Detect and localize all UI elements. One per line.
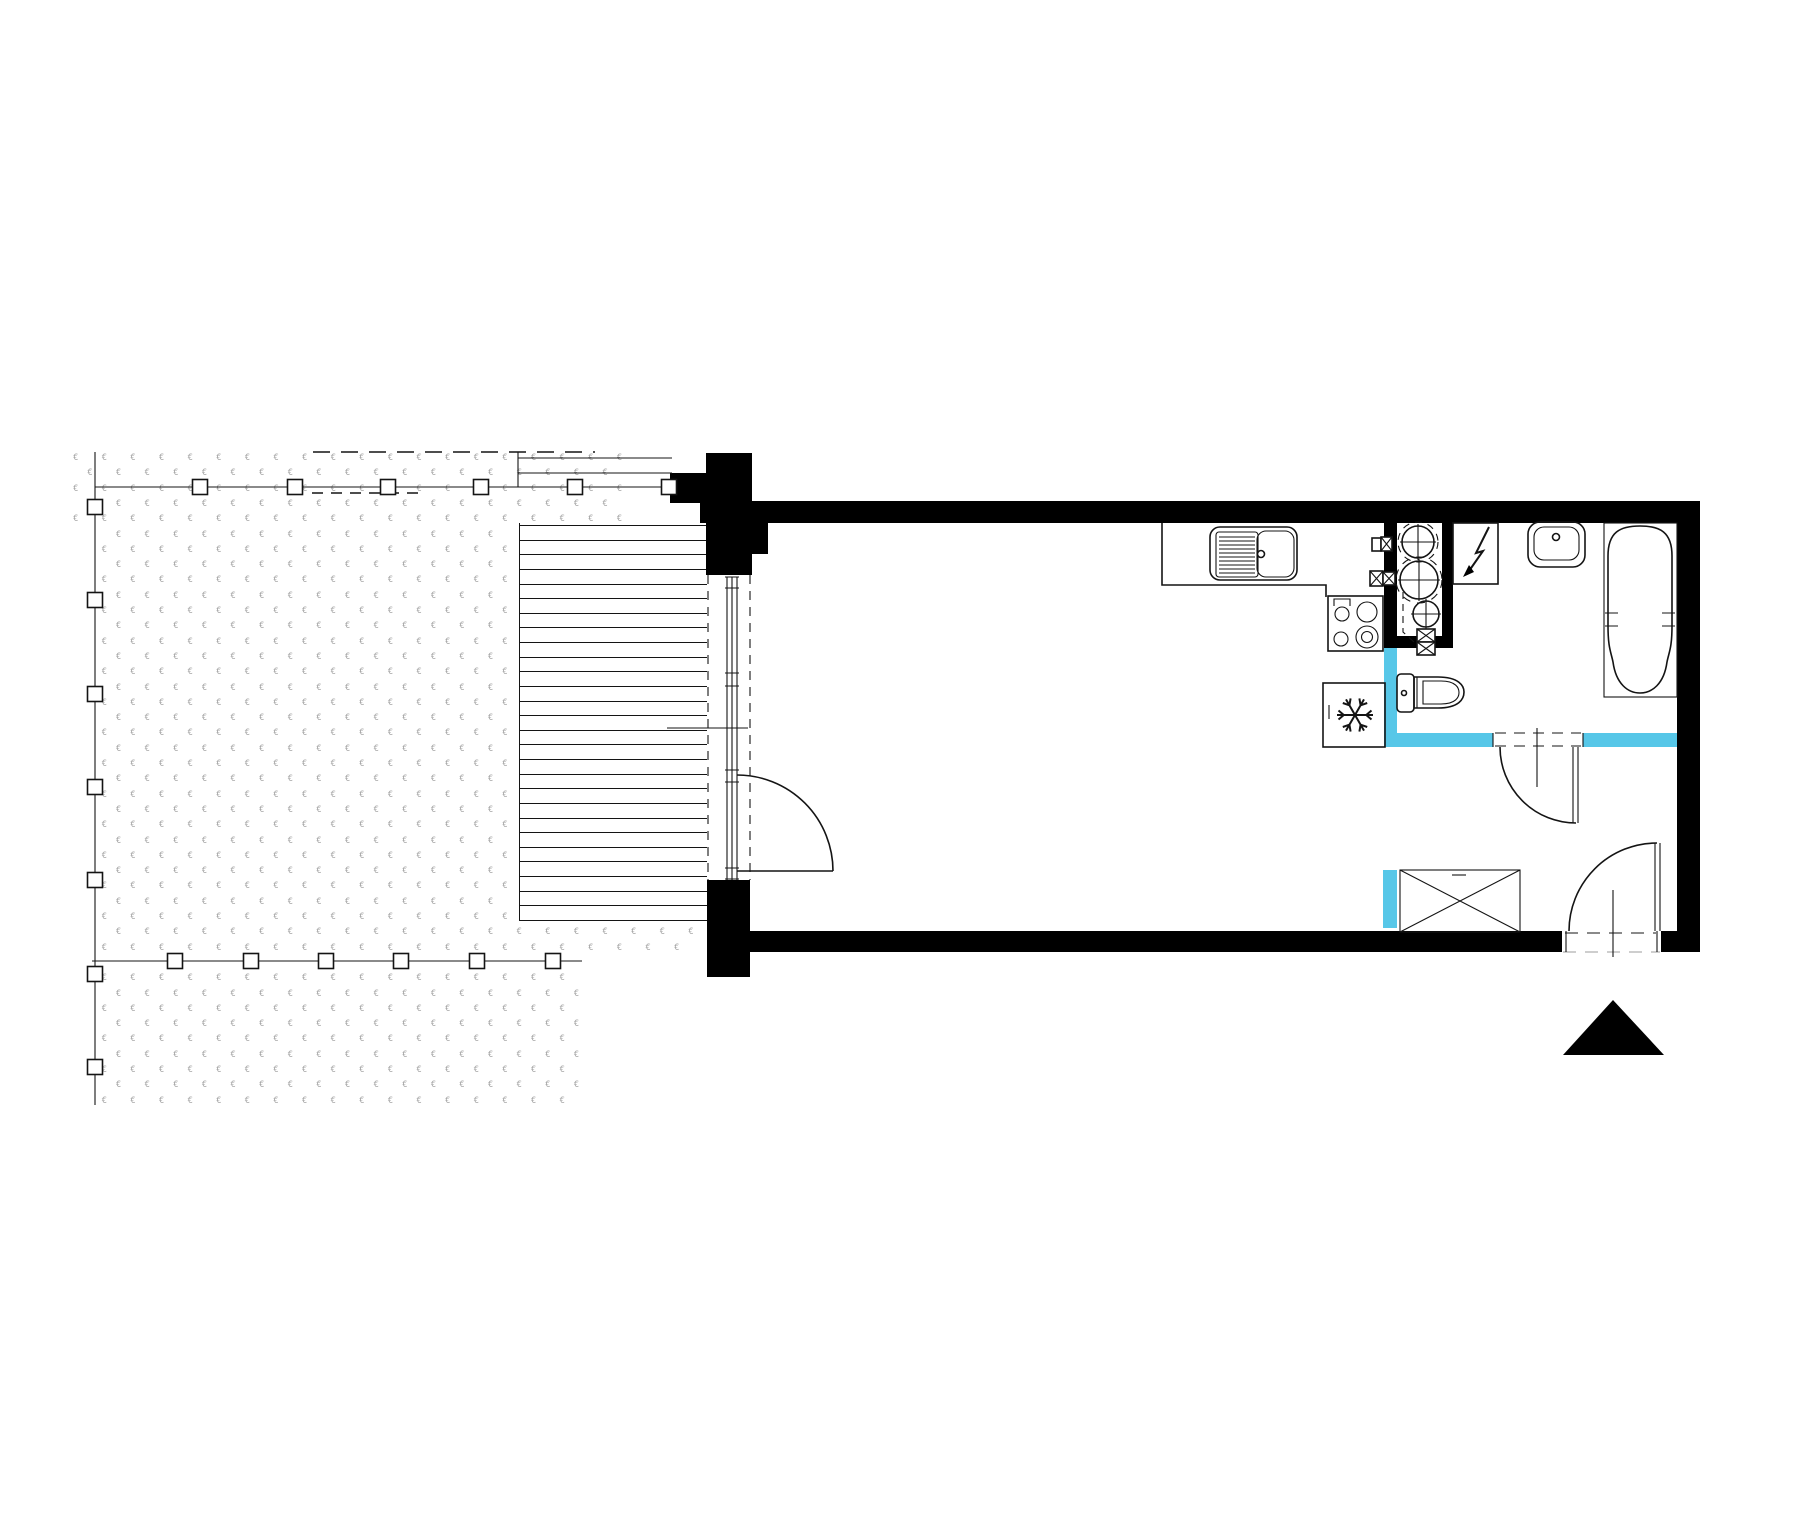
shutoff-valve-c bbox=[1417, 629, 1435, 655]
garden-fence bbox=[88, 452, 677, 1105]
entrance-door bbox=[1563, 843, 1660, 957]
fence-post bbox=[88, 500, 103, 515]
fence-post bbox=[88, 687, 103, 702]
cooktop bbox=[1328, 596, 1383, 651]
washbasin bbox=[1528, 522, 1585, 567]
entrance-arrow-triangle bbox=[1563, 1000, 1664, 1055]
fence-post bbox=[568, 480, 583, 495]
fence-post bbox=[193, 480, 208, 495]
fence-post bbox=[88, 593, 103, 608]
bathtub bbox=[1604, 523, 1677, 697]
bathroom-door bbox=[1493, 728, 1583, 823]
fence-post bbox=[88, 1060, 103, 1075]
shutoff-valve-b bbox=[1370, 571, 1395, 586]
linework bbox=[0, 0, 1800, 1520]
fence-post bbox=[88, 967, 103, 982]
fence-post bbox=[381, 480, 396, 495]
fence-post bbox=[88, 780, 103, 795]
kitchen-counter bbox=[1162, 523, 1326, 597]
sink-drainer-ribs bbox=[1219, 537, 1255, 573]
snowflake-icon bbox=[1337, 698, 1373, 731]
bathroom-door-leaf bbox=[1573, 747, 1578, 823]
fence-post bbox=[244, 954, 259, 969]
fence-post bbox=[168, 954, 183, 969]
refrigerator bbox=[1323, 683, 1385, 747]
fence-post bbox=[288, 480, 303, 495]
plumbing-shaft bbox=[1370, 522, 1442, 655]
kitchen-sink bbox=[1210, 527, 1297, 580]
toilet bbox=[1397, 674, 1464, 712]
fence-post bbox=[474, 480, 489, 495]
faucet-dot bbox=[1258, 551, 1265, 558]
fence-post bbox=[546, 954, 561, 969]
balcony-window-door bbox=[667, 575, 833, 880]
balcony-door-swing-arc bbox=[737, 775, 833, 871]
fence-post bbox=[470, 954, 485, 969]
fence-post bbox=[662, 480, 677, 495]
basin-faucet-dot bbox=[1553, 534, 1560, 541]
fence-post bbox=[319, 954, 334, 969]
electrical-panel bbox=[1453, 523, 1498, 584]
tub-grips bbox=[1605, 613, 1675, 626]
shutoff-valve-a bbox=[1372, 537, 1392, 551]
entrance-door-leaf bbox=[1655, 843, 1660, 931]
fence-post bbox=[88, 873, 103, 888]
floor-plan: €€€€€€€€€€€€€€€€€€€€€€€€€€€€€€€€€€€€€€€€… bbox=[0, 0, 1800, 1520]
fence-post bbox=[394, 954, 409, 969]
wardrobe bbox=[1400, 870, 1520, 932]
bathroom-door-swing-arc bbox=[1500, 747, 1576, 823]
